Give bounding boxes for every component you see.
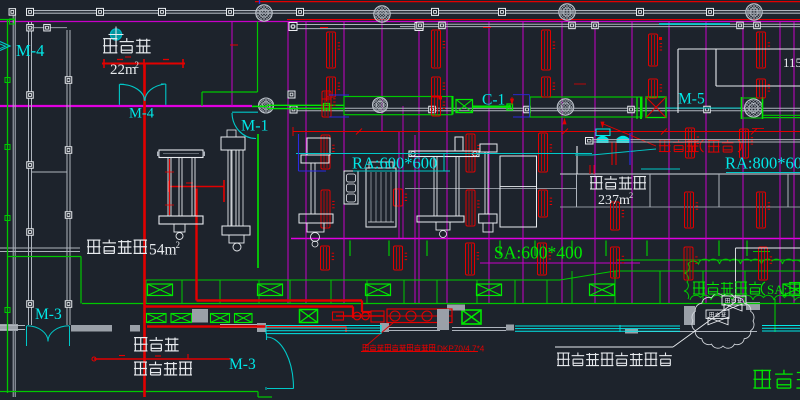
svg-text:115: 115 <box>783 55 800 70</box>
svg-text:2: 2 <box>176 240 181 250</box>
svg-text:M-3: M-3 <box>229 356 256 373</box>
svg-text:DKP70/4.7*4: DKP70/4.7*4 <box>437 345 485 354</box>
svg-text:RA:600*600: RA:600*600 <box>352 154 437 173</box>
svg-text:RA:800*600: RA:800*600 <box>725 154 800 173</box>
svg-text:M-3: M-3 <box>35 306 62 323</box>
svg-text:M-1: M-1 <box>241 118 269 135</box>
svg-text:54m: 54m <box>149 242 177 259</box>
svg-text:C-1: C-1 <box>482 92 505 109</box>
svg-text:M-4: M-4 <box>16 41 44 60</box>
svg-text:M-4: M-4 <box>129 106 155 122</box>
svg-text:2: 2 <box>629 190 633 200</box>
svg-text:SA:600*400: SA:600*400 <box>494 243 583 263</box>
svg-text:SA:: SA: <box>767 282 787 297</box>
svg-text:237m: 237m <box>598 193 630 208</box>
svg-text:2: 2 <box>135 60 140 70</box>
svg-text:M-5: M-5 <box>678 91 705 108</box>
svg-text:22m: 22m <box>110 62 137 78</box>
